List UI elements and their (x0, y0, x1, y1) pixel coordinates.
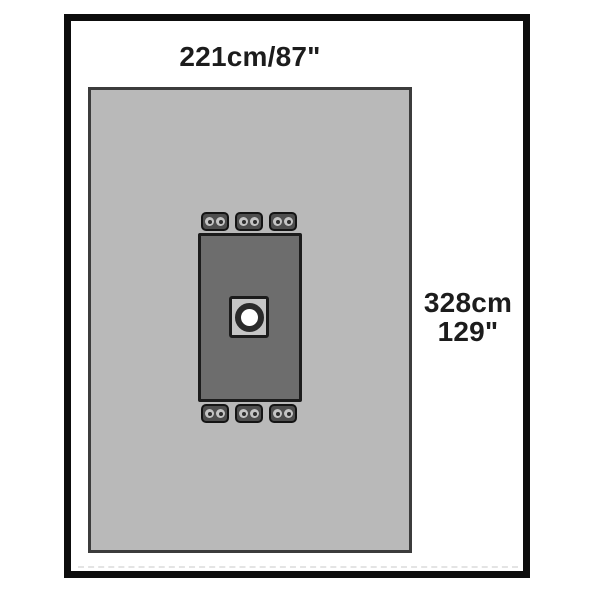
width-dimension-label: 221cm/87" (88, 41, 412, 73)
fenestration-hole (235, 303, 264, 332)
grommet-icon (216, 217, 225, 226)
height-inches-label: 129" (412, 317, 524, 346)
fastening-tab-bottom-3 (269, 404, 297, 423)
fastening-tab-top-3 (269, 212, 297, 231)
grommet-icon (284, 409, 293, 418)
grommet-icon (250, 217, 259, 226)
grommet-icon (239, 409, 248, 418)
grommet-icon (205, 409, 214, 418)
grommet-icon (250, 409, 259, 418)
fastening-tab-bottom-1 (201, 404, 229, 423)
height-cm-label: 328cm (412, 288, 524, 317)
grommet-icon (273, 409, 282, 418)
fastening-tab-top-1 (201, 212, 229, 231)
product-image: 221cm/87" 328cm 129" (0, 0, 600, 600)
fold-line (78, 566, 518, 568)
grommet-icon (273, 217, 282, 226)
grommet-icon (284, 217, 293, 226)
fastening-tab-bottom-2 (235, 404, 263, 423)
fastening-tab-top-2 (235, 212, 263, 231)
height-dimension-label: 328cm 129" (412, 288, 524, 346)
grommet-icon (205, 217, 214, 226)
fenestration-pad (229, 296, 269, 338)
grommet-icon (239, 217, 248, 226)
grommet-icon (216, 409, 225, 418)
